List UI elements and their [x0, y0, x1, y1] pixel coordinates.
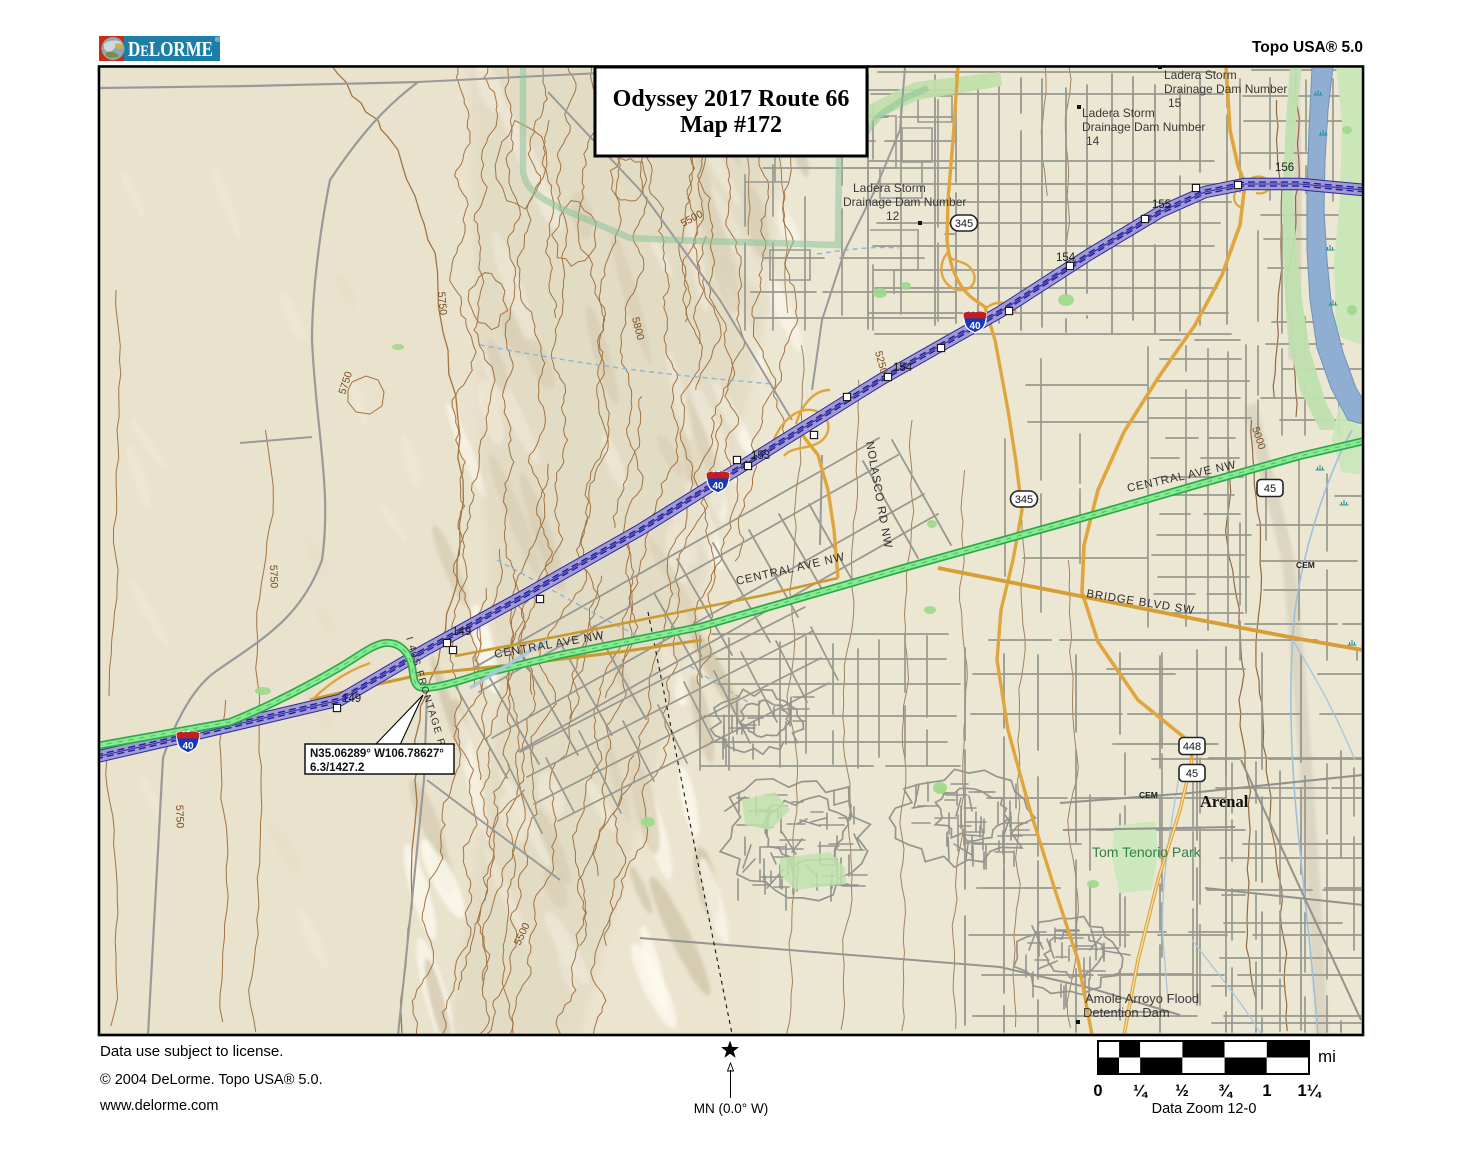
svg-text:0: 0 [1093, 1082, 1102, 1100]
svg-text:CEM: CEM [1296, 560, 1315, 570]
svg-text:5750: 5750 [267, 565, 280, 589]
svg-text:®: ® [215, 36, 221, 44]
svg-text:Arenal: Arenal [1200, 792, 1249, 811]
svg-text:Drainage Dam Number: Drainage Dam Number [1164, 82, 1287, 96]
svg-text:Drainage Dam Number: Drainage Dam Number [1082, 120, 1205, 134]
svg-text:12: 12 [886, 209, 900, 223]
svg-text:Drainage Dam Number: Drainage Dam Number [843, 195, 966, 209]
svg-text:153: 153 [751, 450, 770, 462]
svg-text:½: ½ [1175, 1082, 1189, 1100]
svg-text:¼: ¼ [1133, 1082, 1148, 1100]
svg-text:Data use subject to license.: Data use subject to license. [100, 1043, 283, 1060]
svg-text:149: 149 [342, 693, 361, 705]
svg-text:154: 154 [893, 362, 913, 374]
svg-text:5750: 5750 [173, 805, 186, 829]
svg-text:156: 156 [1275, 162, 1294, 174]
svg-text:448: 448 [1183, 741, 1201, 753]
svg-text:345: 345 [1015, 494, 1033, 506]
svg-text:45: 45 [1264, 483, 1276, 495]
svg-text:155: 155 [1152, 199, 1171, 211]
svg-text:Detention Dam: Detention Dam [1083, 1005, 1170, 1020]
svg-text:345: 345 [955, 218, 973, 230]
svg-text:154: 154 [1056, 252, 1076, 264]
svg-text:Amole Arroyo Flood: Amole Arroyo Flood [1085, 991, 1199, 1006]
svg-text:1¼: 1¼ [1298, 1082, 1322, 1100]
svg-text:15: 15 [1168, 96, 1182, 110]
svg-text:N35.06289° W106.78627°: N35.06289° W106.78627° [310, 748, 444, 760]
svg-text:6.3/1427.2: 6.3/1427.2 [310, 762, 364, 774]
svg-text:Ladera Storm: Ladera Storm [853, 181, 926, 195]
svg-text:Map #172: Map #172 [680, 112, 782, 138]
svg-text:Data Zoom 12-0: Data Zoom 12-0 [1152, 1101, 1257, 1117]
svg-text:¾: ¾ [1218, 1082, 1233, 1100]
svg-text:149: 149 [452, 626, 471, 638]
svg-text:© 2004 DeLorme. Topo USA® 5.0.: © 2004 DeLorme. Topo USA® 5.0. [100, 1072, 323, 1088]
svg-text:CEM: CEM [1139, 790, 1158, 800]
svg-text:5750: 5750 [435, 291, 449, 315]
svg-text:MN (0.0° W): MN (0.0° W) [694, 1101, 768, 1116]
svg-text:www.delorme.com: www.delorme.com [99, 1098, 218, 1114]
svg-text:mi: mi [1318, 1047, 1336, 1066]
svg-text:Odyssey 2017 Route 66: Odyssey 2017 Route 66 [613, 86, 850, 112]
svg-text:Ladera Storm: Ladera Storm [1164, 68, 1237, 82]
svg-text:Topo USA® 5.0: Topo USA® 5.0 [1252, 39, 1363, 56]
svg-text:Tom Tenorio Park: Tom Tenorio Park [1092, 844, 1202, 860]
svg-text:14: 14 [1086, 134, 1100, 148]
svg-text:1: 1 [1262, 1082, 1271, 1100]
svg-text:45: 45 [1186, 768, 1198, 780]
svg-text:Ladera Storm: Ladera Storm [1082, 106, 1155, 120]
